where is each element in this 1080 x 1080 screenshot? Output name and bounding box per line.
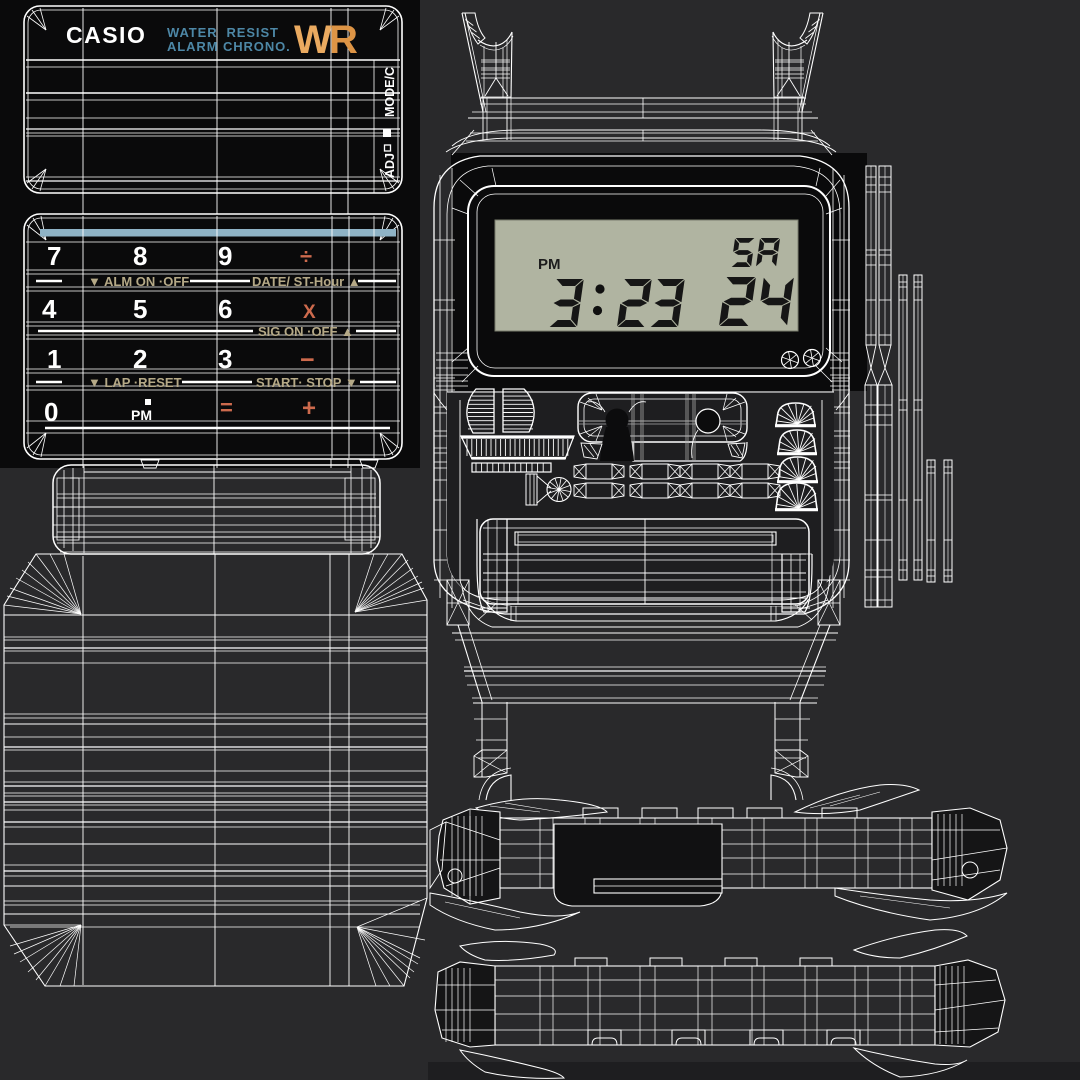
svg-text:7: 7	[47, 241, 61, 271]
svg-text:PM: PM	[131, 407, 152, 423]
svg-text:9: 9	[218, 241, 232, 271]
svg-text:1: 1	[47, 344, 61, 374]
svg-text:▼ LAP ·RESET: ▼ LAP ·RESET	[88, 375, 182, 390]
svg-text:+: +	[302, 395, 316, 422]
svg-text:▼ ALM ON ·OFF: ▼ ALM ON ·OFF	[88, 274, 189, 289]
svg-text:CASIO: CASIO	[66, 22, 146, 48]
svg-text:4: 4	[42, 294, 57, 324]
svg-text:DATE/ ST-Hour ▲: DATE/ ST-Hour ▲	[252, 274, 361, 289]
svg-text:6: 6	[218, 294, 232, 324]
svg-text:START· STOP ▼: START· STOP ▼	[256, 375, 358, 390]
svg-text:8: 8	[133, 241, 147, 271]
svg-text:PM: PM	[538, 256, 561, 273]
svg-text:MODE/C: MODE/C	[383, 67, 397, 117]
svg-text:X: X	[303, 302, 316, 323]
svg-text:ADJ: ADJ	[383, 153, 397, 178]
svg-text:SIG ON ·OFF ▲: SIG ON ·OFF ▲	[258, 324, 354, 339]
svg-text:3: 3	[218, 344, 232, 374]
svg-text:ALARM CHRONO.: ALARM CHRONO.	[167, 39, 291, 54]
svg-text:5: 5	[133, 294, 147, 324]
svg-text:−: −	[300, 346, 315, 374]
svg-text:÷: ÷	[300, 244, 312, 269]
svg-text:=: =	[220, 395, 233, 420]
svg-text:0: 0	[44, 397, 58, 427]
svg-text:W: W	[294, 18, 332, 62]
svg-text:2: 2	[133, 344, 147, 374]
svg-text:WATER RESIST: WATER RESIST	[167, 25, 279, 40]
svg-text:R: R	[329, 18, 358, 62]
